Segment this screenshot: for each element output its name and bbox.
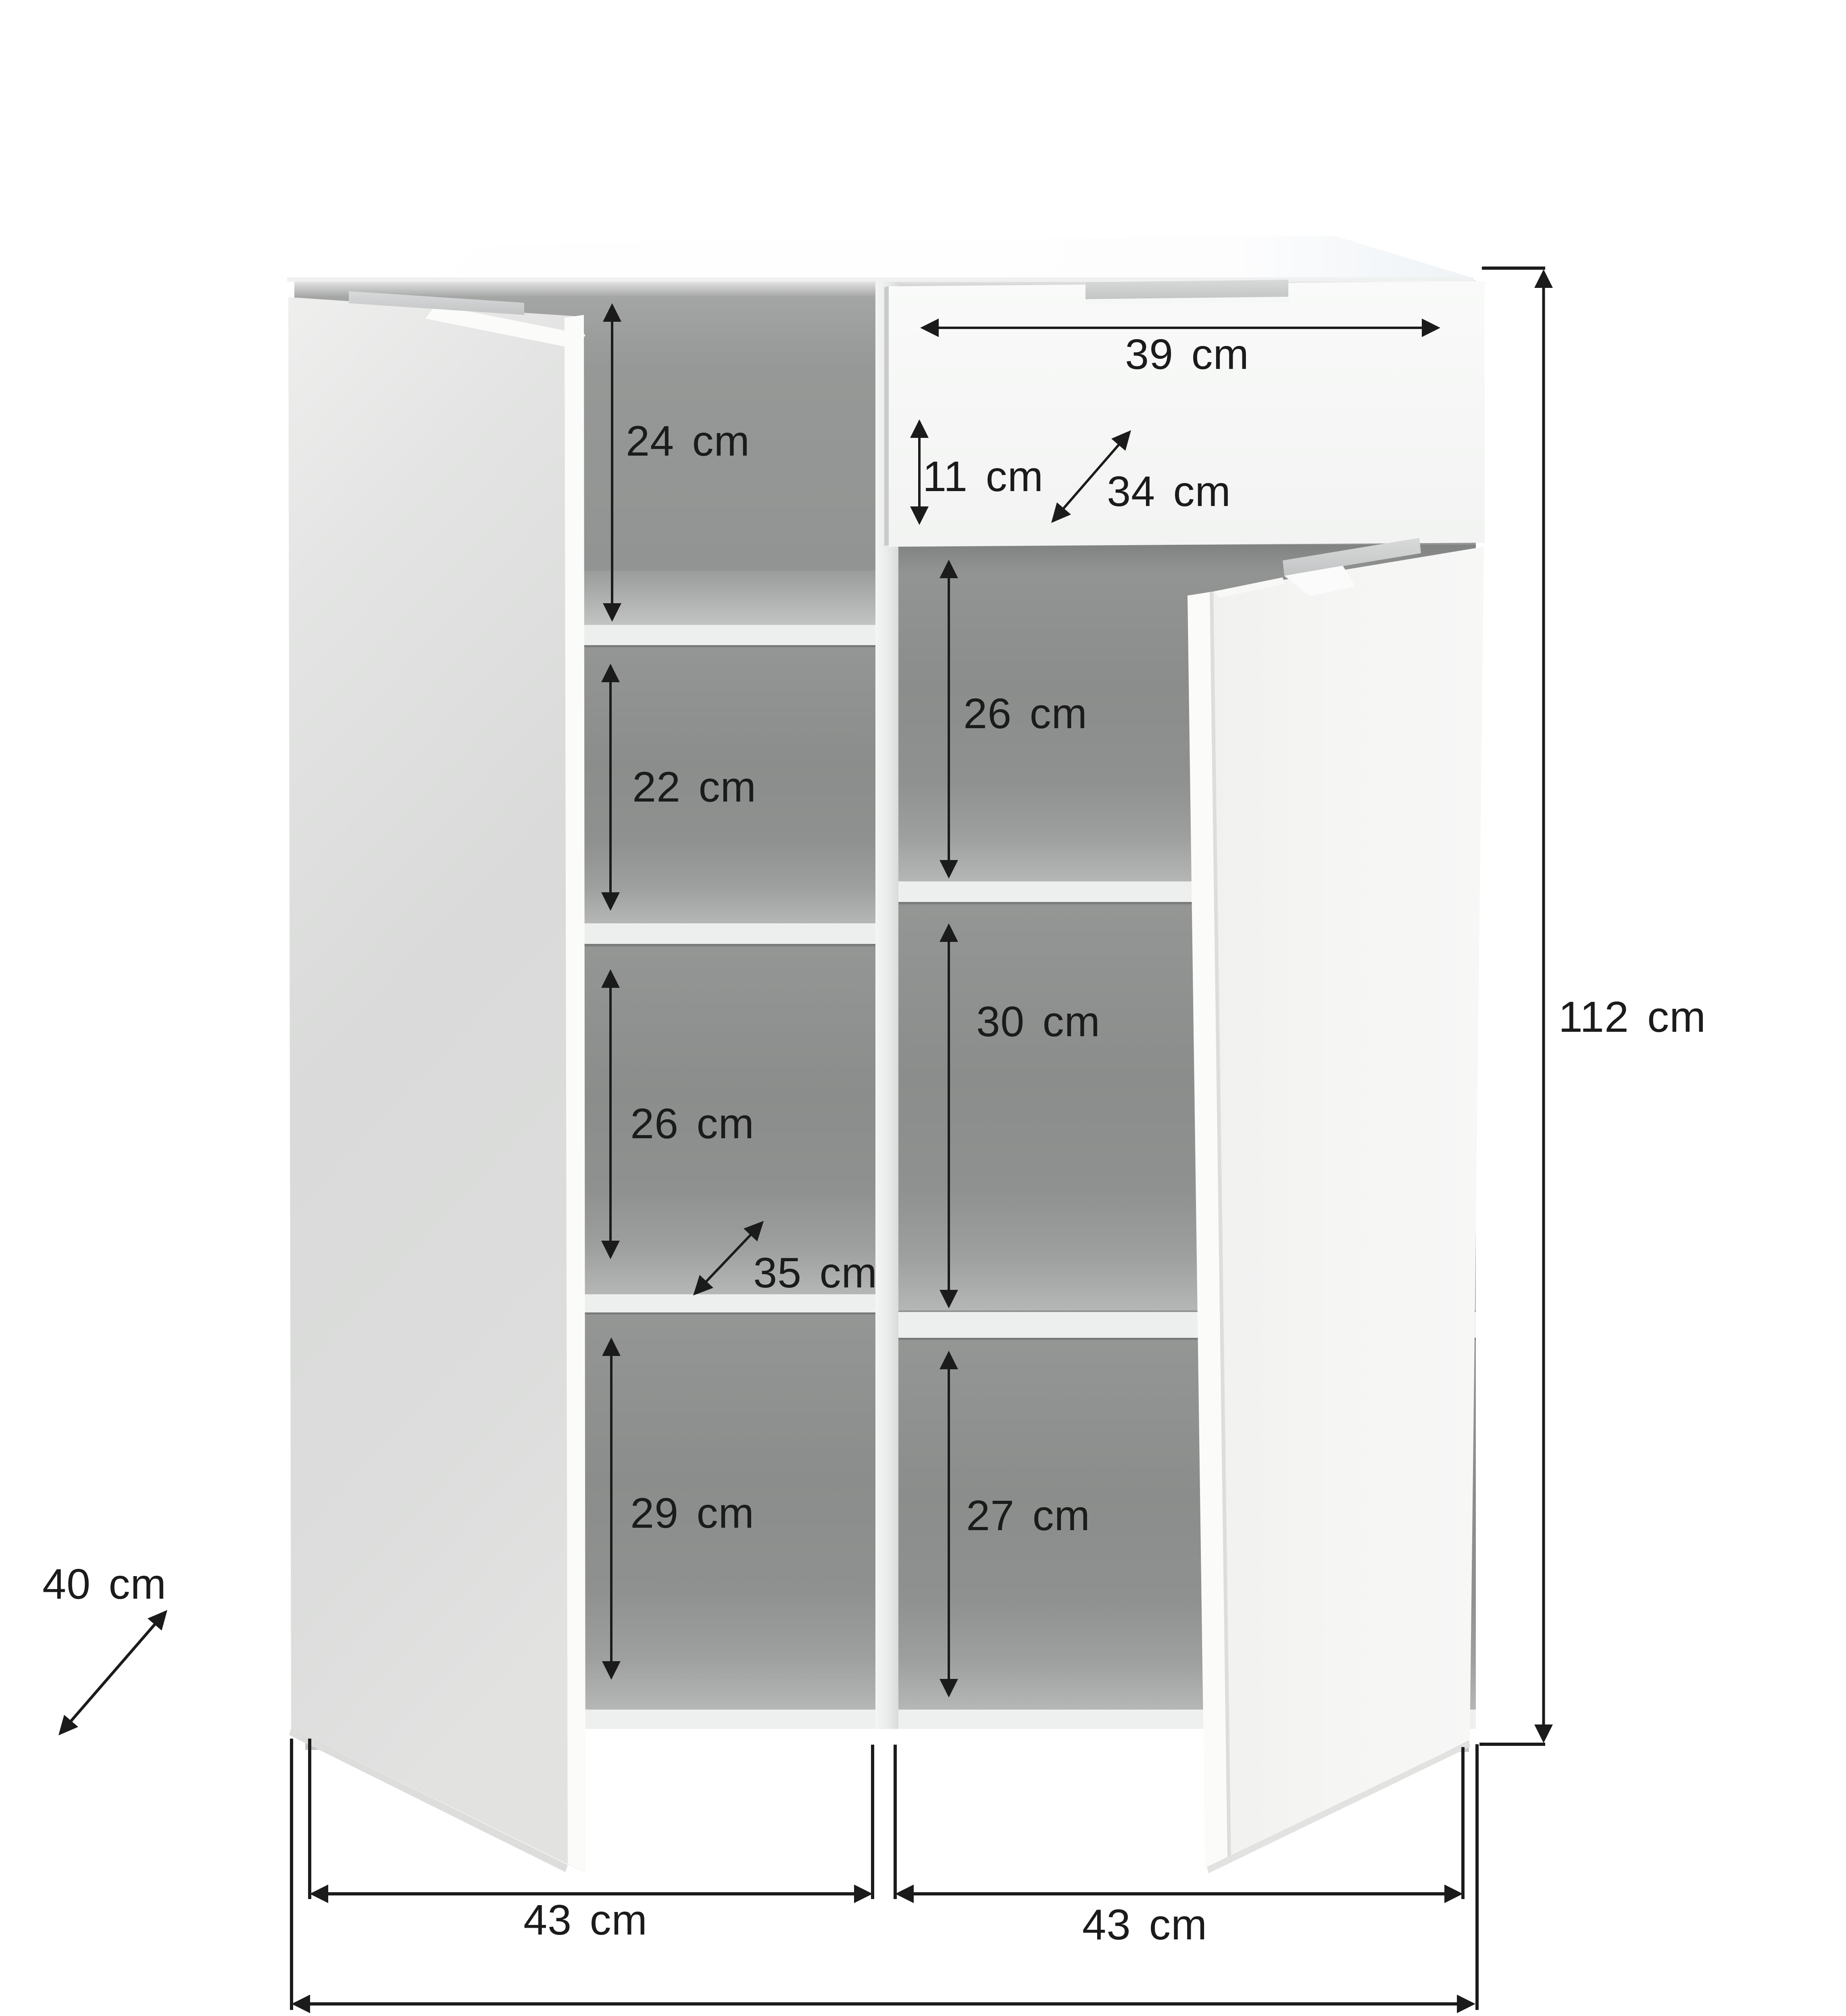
svg-text:43 cm: 43 cm: [523, 1896, 648, 1944]
svg-text:26 cm: 26 cm: [630, 1100, 754, 1148]
svg-text:40 cm: 40 cm: [42, 1560, 167, 1608]
svg-text:29 cm: 29 cm: [630, 1489, 754, 1537]
svg-text:27 cm: 27 cm: [966, 1492, 1090, 1539]
svg-text:43 cm: 43 cm: [1082, 1900, 1207, 1949]
svg-text:24 cm: 24 cm: [626, 417, 750, 465]
svg-text:34 cm: 34 cm: [1107, 468, 1231, 515]
svg-text:112 cm: 112 cm: [1558, 992, 1706, 1041]
svg-text:26 cm: 26 cm: [963, 690, 1088, 737]
svg-text:35 cm: 35 cm: [753, 1249, 877, 1297]
svg-text:22 cm: 22 cm: [632, 763, 756, 811]
svg-text:30 cm: 30 cm: [976, 998, 1100, 1045]
svg-text:39 cm: 39 cm: [1125, 331, 1249, 378]
svg-text:11 cm: 11 cm: [923, 453, 1044, 500]
